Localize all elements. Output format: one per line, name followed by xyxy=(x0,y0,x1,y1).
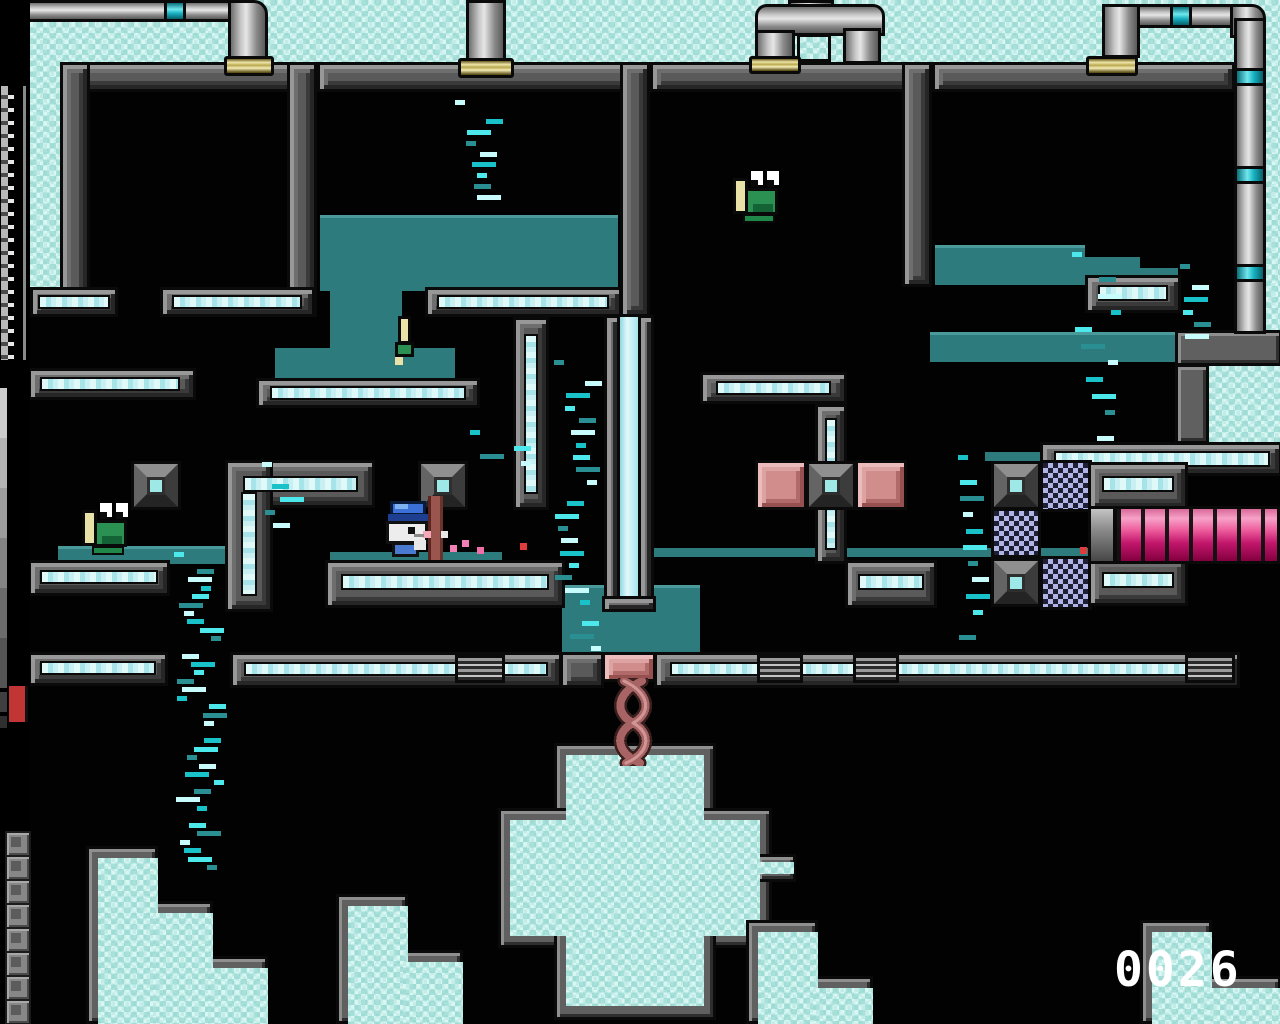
spark-particle xyxy=(477,547,484,554)
water-drip xyxy=(204,721,214,726)
water-drip xyxy=(477,173,487,178)
water-drip xyxy=(214,780,224,785)
hud-slot-inner xyxy=(11,957,21,967)
water-drip xyxy=(466,141,476,146)
water-drip xyxy=(480,454,504,459)
water-drip xyxy=(1180,264,1190,269)
hud-slot-button[interactable] xyxy=(5,855,31,881)
hud-slot-inner xyxy=(11,981,21,991)
water-drip xyxy=(571,430,595,435)
water-drip xyxy=(211,636,221,641)
water-drip xyxy=(580,600,590,605)
water-drip xyxy=(1192,285,1209,290)
water-drip xyxy=(204,738,221,743)
water-drip xyxy=(558,526,568,531)
water-drip xyxy=(194,747,218,752)
hud-slot-inner xyxy=(11,933,21,943)
water-drip xyxy=(972,577,989,582)
playfield[interactable] xyxy=(0,0,1280,1024)
water-drip xyxy=(177,696,187,701)
water-drip xyxy=(1183,310,1193,315)
score-counter: 0026 xyxy=(1114,942,1280,998)
water-drip xyxy=(187,755,197,760)
hud-slot-button[interactable] xyxy=(5,903,31,929)
water-drip xyxy=(192,594,209,599)
water-drip xyxy=(203,713,227,718)
water-drip xyxy=(182,654,199,659)
water-drip xyxy=(189,823,206,828)
water-drip xyxy=(474,184,491,189)
water-drip xyxy=(966,529,983,534)
hud-slot-inner xyxy=(11,885,21,895)
water-drip xyxy=(555,575,572,580)
water-drip xyxy=(174,552,184,557)
hud-slot-inner xyxy=(11,837,21,847)
water-drip xyxy=(1075,327,1092,332)
spark-particle xyxy=(462,540,469,547)
water-drip xyxy=(207,865,217,870)
water-drip xyxy=(467,130,491,135)
water-drip xyxy=(184,848,201,853)
water-drip xyxy=(514,446,531,451)
water-drip xyxy=(188,857,212,862)
spark-particle xyxy=(520,543,527,550)
hud-slot-button[interactable] xyxy=(5,975,31,1001)
water-drip xyxy=(187,619,204,624)
water-drip xyxy=(1092,394,1116,399)
water-drip xyxy=(179,603,203,608)
hud-sidebar xyxy=(0,0,30,1024)
water-drip xyxy=(561,538,578,543)
water-drip xyxy=(959,635,976,640)
water-drip xyxy=(585,381,602,386)
water-drip xyxy=(1098,294,1122,299)
water-drip xyxy=(272,484,289,489)
water-drip xyxy=(486,119,503,124)
water-drip xyxy=(1194,322,1211,327)
water-drip xyxy=(188,577,212,582)
water-drip xyxy=(570,634,594,639)
water-drip xyxy=(262,462,272,467)
water-drip xyxy=(1072,252,1082,257)
hud-slot-column xyxy=(0,0,30,1024)
water-drip xyxy=(576,443,586,448)
spark-particle xyxy=(441,531,448,538)
water-drip xyxy=(194,670,204,675)
water-drip xyxy=(197,831,221,836)
water-drip xyxy=(582,621,599,626)
water-drip xyxy=(273,523,290,528)
hud-slot-button[interactable] xyxy=(5,927,31,953)
hud-slot-inner xyxy=(11,909,21,919)
water-drip xyxy=(176,797,200,802)
water-drip xyxy=(521,461,531,466)
water-drip xyxy=(573,455,590,460)
water-drip xyxy=(587,480,597,485)
water-drip xyxy=(197,569,214,574)
water-drip xyxy=(194,789,211,794)
water-drip xyxy=(1081,344,1105,349)
water-drip xyxy=(201,586,211,591)
water-drip xyxy=(180,840,190,845)
spark-particle xyxy=(450,545,457,552)
water-drip xyxy=(579,418,596,423)
water-drip xyxy=(1184,297,1208,302)
water-drip xyxy=(968,561,978,566)
water-drip xyxy=(1185,334,1209,339)
water-particles xyxy=(0,0,1280,1024)
hud-slot-button[interactable] xyxy=(5,831,31,857)
water-drip xyxy=(960,480,977,485)
water-drip xyxy=(960,496,984,501)
water-drip xyxy=(565,588,589,593)
water-drip xyxy=(265,510,275,515)
water-drip xyxy=(576,467,600,472)
water-drip xyxy=(191,662,215,667)
water-drip xyxy=(199,764,216,769)
water-drip xyxy=(958,455,968,460)
water-drip xyxy=(182,687,206,692)
hud-slot-button[interactable] xyxy=(5,879,31,905)
water-drip xyxy=(197,806,207,811)
water-drip xyxy=(470,430,480,435)
water-drip xyxy=(280,497,304,502)
water-drip xyxy=(1086,377,1103,382)
game-screen: 0026 xyxy=(0,0,1280,1024)
water-drip xyxy=(567,501,584,506)
water-drip xyxy=(565,406,575,411)
water-drip xyxy=(472,162,496,167)
water-drip xyxy=(1105,410,1115,415)
water-drip xyxy=(555,514,579,519)
water-drip xyxy=(560,551,584,556)
water-drip xyxy=(1111,310,1121,315)
hud-slot-inner xyxy=(11,861,21,871)
hud-slot-button[interactable] xyxy=(5,999,31,1024)
hud-slot-inner xyxy=(11,1005,21,1015)
water-drip xyxy=(480,152,497,157)
water-drip xyxy=(963,512,973,517)
water-drip xyxy=(200,628,224,633)
water-drip xyxy=(1108,360,1118,365)
water-drip xyxy=(966,594,990,599)
water-drip xyxy=(1097,436,1114,441)
water-drip xyxy=(177,679,194,684)
water-drip xyxy=(973,610,983,615)
water-drip xyxy=(1099,277,1116,282)
water-drip xyxy=(184,611,194,616)
spark-particle xyxy=(1080,547,1087,554)
water-drip xyxy=(591,646,601,651)
water-drip xyxy=(566,393,590,398)
hud-slot-button[interactable] xyxy=(5,951,31,977)
water-drip xyxy=(209,704,226,709)
water-drip xyxy=(185,772,209,777)
water-drip xyxy=(477,195,501,200)
water-drip xyxy=(569,563,579,568)
water-drip xyxy=(455,100,465,105)
water-drip xyxy=(963,545,987,550)
water-drip xyxy=(554,360,564,365)
